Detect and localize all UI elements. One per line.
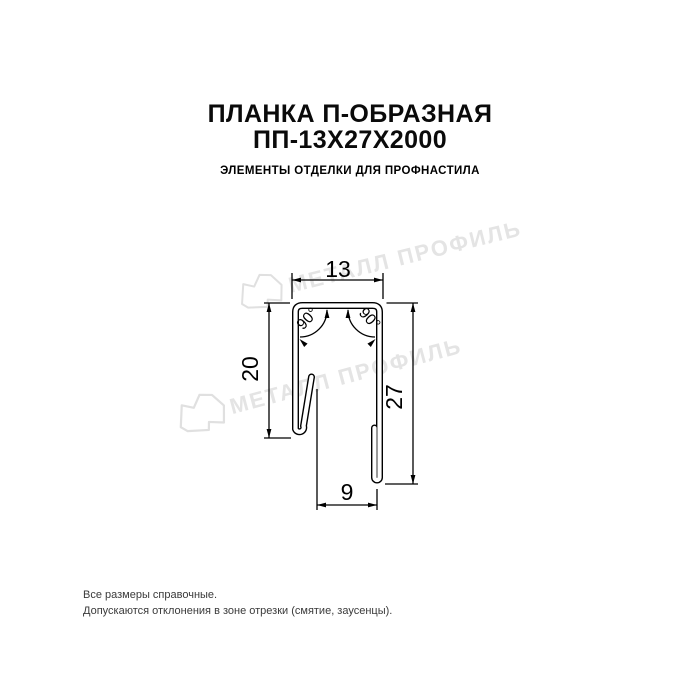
page-title: ПЛАНКА П-ОБРАЗНАЯ ПП-13Х27Х2000 xyxy=(0,101,700,153)
arrow-icon xyxy=(367,337,377,347)
page-title-line2: ПП-13Х27Х2000 xyxy=(0,127,700,153)
watermark-top: МЕТАЛЛ ПРОФИЛЬ xyxy=(236,211,525,313)
metall-profil-logo-icon xyxy=(236,270,286,312)
dim-left-extension-lines xyxy=(264,303,291,438)
profile-cross-section xyxy=(296,306,380,481)
dim-label-right-height: 27 xyxy=(381,384,407,410)
product-drawing-page: МЕТАЛЛ ПРОФИЛЬ МЕТАЛЛ ПРОФИЛЬ xyxy=(0,0,700,700)
arrow-icon xyxy=(346,309,351,318)
profile-sheet-core xyxy=(296,306,380,481)
arrow-icon xyxy=(411,303,416,312)
watermark-text: МЕТАЛЛ ПРОФИЛЬ xyxy=(286,216,524,298)
arrow-icon xyxy=(374,278,383,283)
watermark-middle: МЕТАЛЛ ПРОФИЛЬ xyxy=(174,326,466,437)
dim-label-bottom-width: 9 xyxy=(341,479,354,505)
page-subtitle: ЭЛЕМЕНТЫ ОТДЕЛКИ ДЛЯ ПРОФНАСТИЛА xyxy=(0,165,700,177)
header: ПЛАНКА П-ОБРАЗНАЯ ПП-13Х27Х2000 ЭЛЕМЕНТЫ… xyxy=(0,101,700,177)
arrow-icon xyxy=(317,503,326,508)
arrow-icon xyxy=(368,503,377,508)
dim-label-left-height: 20 xyxy=(237,356,263,382)
page-title-line1: ПЛАНКА П-ОБРАЗНАЯ xyxy=(0,101,700,127)
arrow-icon xyxy=(325,309,330,318)
arrow-icon xyxy=(298,337,308,347)
metall-profil-logo-icon xyxy=(174,389,229,436)
arrow-icon xyxy=(411,475,416,484)
footer-note-line1: Все размеры справочные. xyxy=(83,588,392,604)
dim-label-top-width: 13 xyxy=(325,256,351,282)
footer-notes: Все размеры справочные. Допускаются откл… xyxy=(83,588,392,619)
footer-note-line2: Допускаются отклонения в зоне отрезки (с… xyxy=(83,604,392,620)
arrow-icon xyxy=(267,429,272,438)
